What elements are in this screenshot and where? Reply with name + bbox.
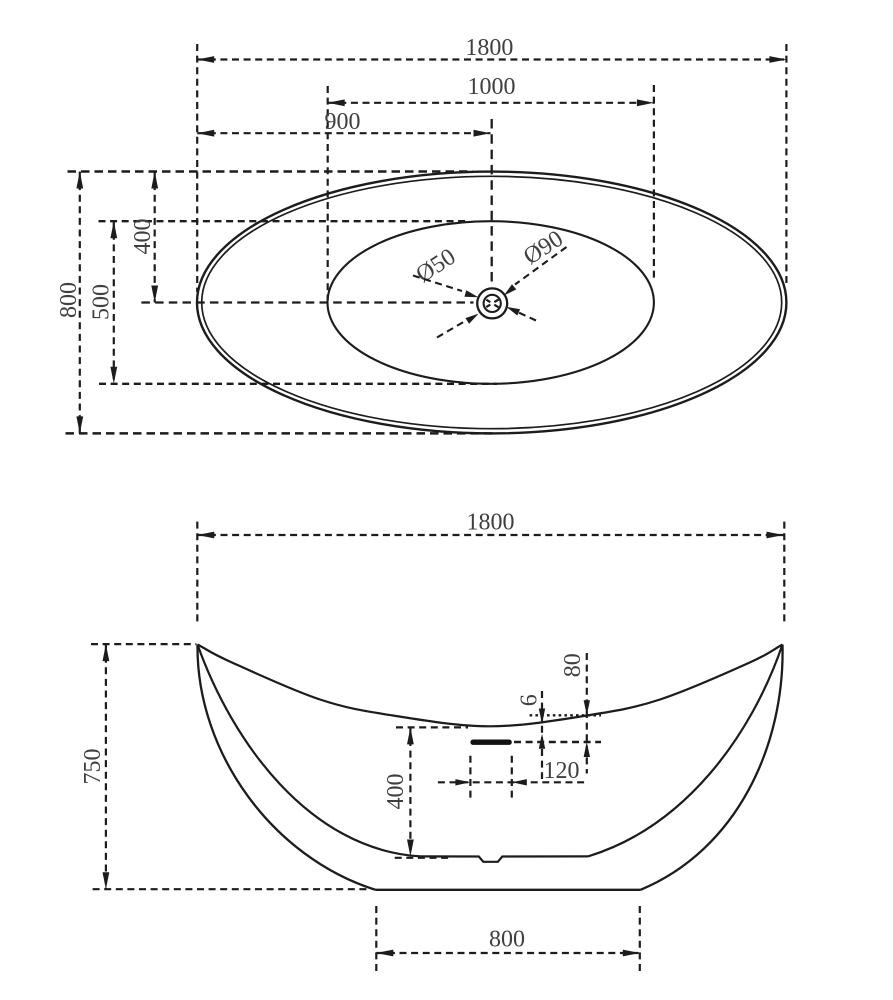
svg-text:400: 400 [130, 219, 156, 255]
svg-text:6: 6 [517, 694, 543, 706]
svg-text:120: 120 [544, 758, 580, 784]
svg-text:1000: 1000 [468, 74, 516, 100]
svg-text:1800: 1800 [465, 35, 513, 61]
svg-text:80: 80 [560, 653, 586, 677]
svg-text:1800: 1800 [467, 510, 515, 536]
svg-text:500: 500 [89, 284, 115, 320]
svg-text:Ø50: Ø50 [412, 244, 461, 288]
svg-text:900: 900 [325, 109, 361, 135]
svg-text:400: 400 [383, 774, 409, 810]
svg-text:750: 750 [80, 749, 106, 785]
svg-text:800: 800 [489, 927, 525, 953]
svg-text:800: 800 [56, 282, 82, 318]
